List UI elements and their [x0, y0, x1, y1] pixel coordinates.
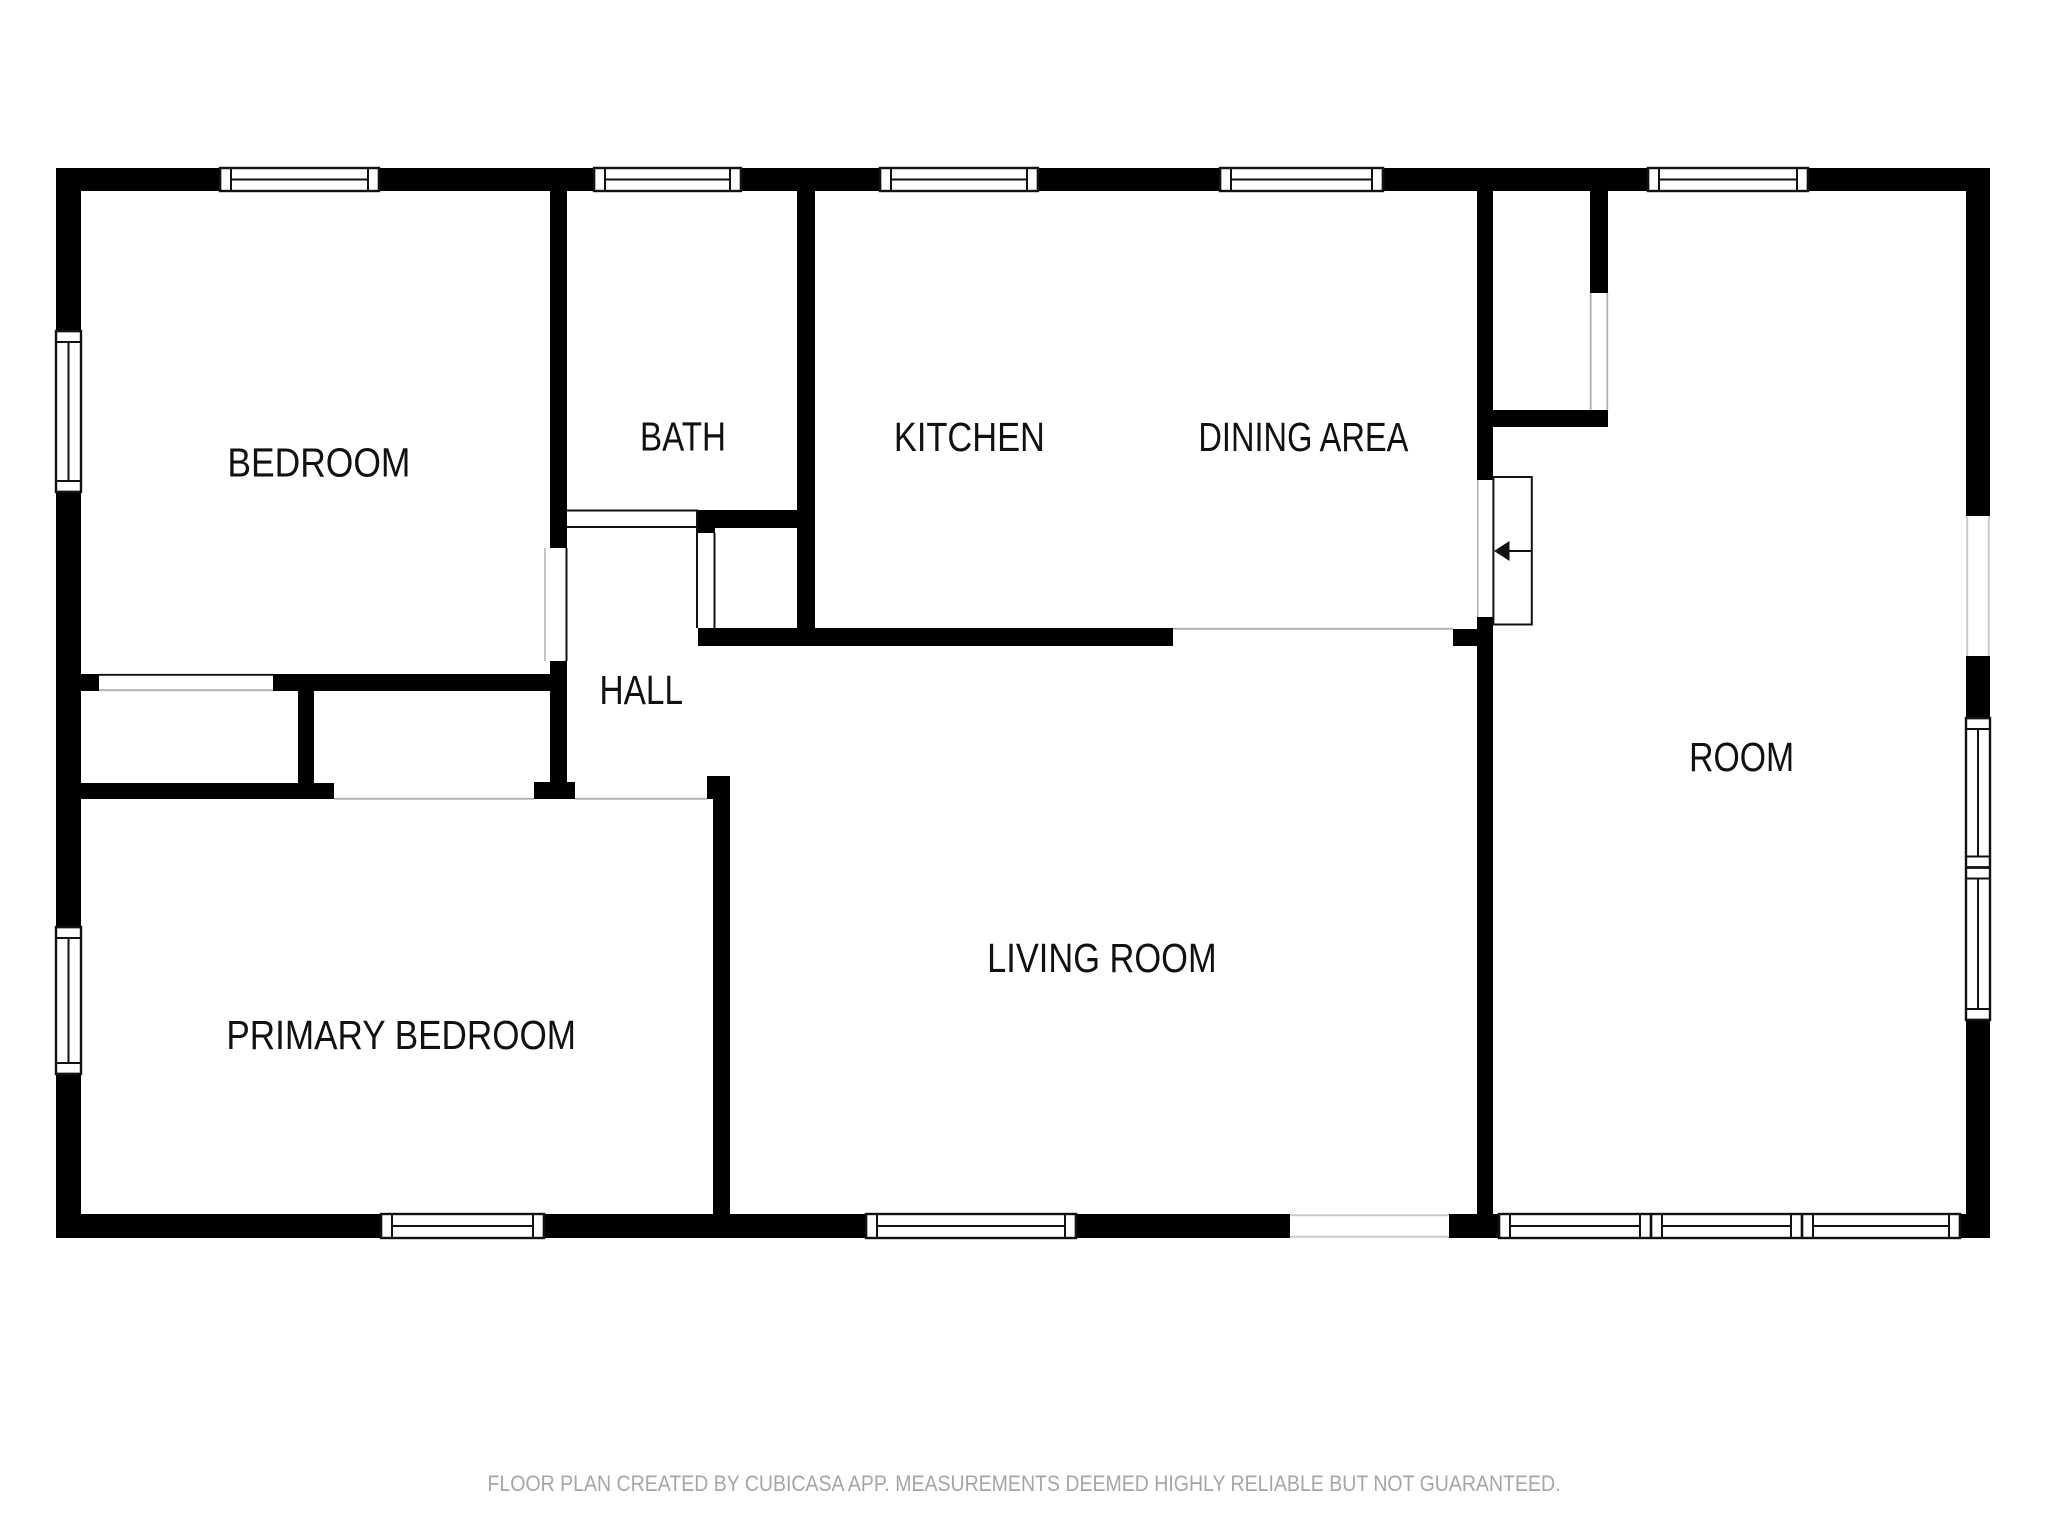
svg-text:LIVING ROOM: LIVING ROOM: [987, 935, 1217, 981]
svg-text:HALL: HALL: [600, 667, 684, 713]
svg-text:ROOM: ROOM: [1689, 734, 1794, 780]
svg-text:BATH: BATH: [640, 414, 726, 460]
svg-text:KITCHEN: KITCHEN: [894, 414, 1045, 460]
svg-text:DINING AREA: DINING AREA: [1198, 414, 1408, 460]
svg-text:FLOOR PLAN CREATED BY CUBICASA: FLOOR PLAN CREATED BY CUBICASA APP. MEAS…: [488, 1471, 1561, 1496]
svg-text:BEDROOM: BEDROOM: [227, 440, 410, 486]
svg-text:PRIMARY BEDROOM: PRIMARY BEDROOM: [226, 1012, 576, 1058]
